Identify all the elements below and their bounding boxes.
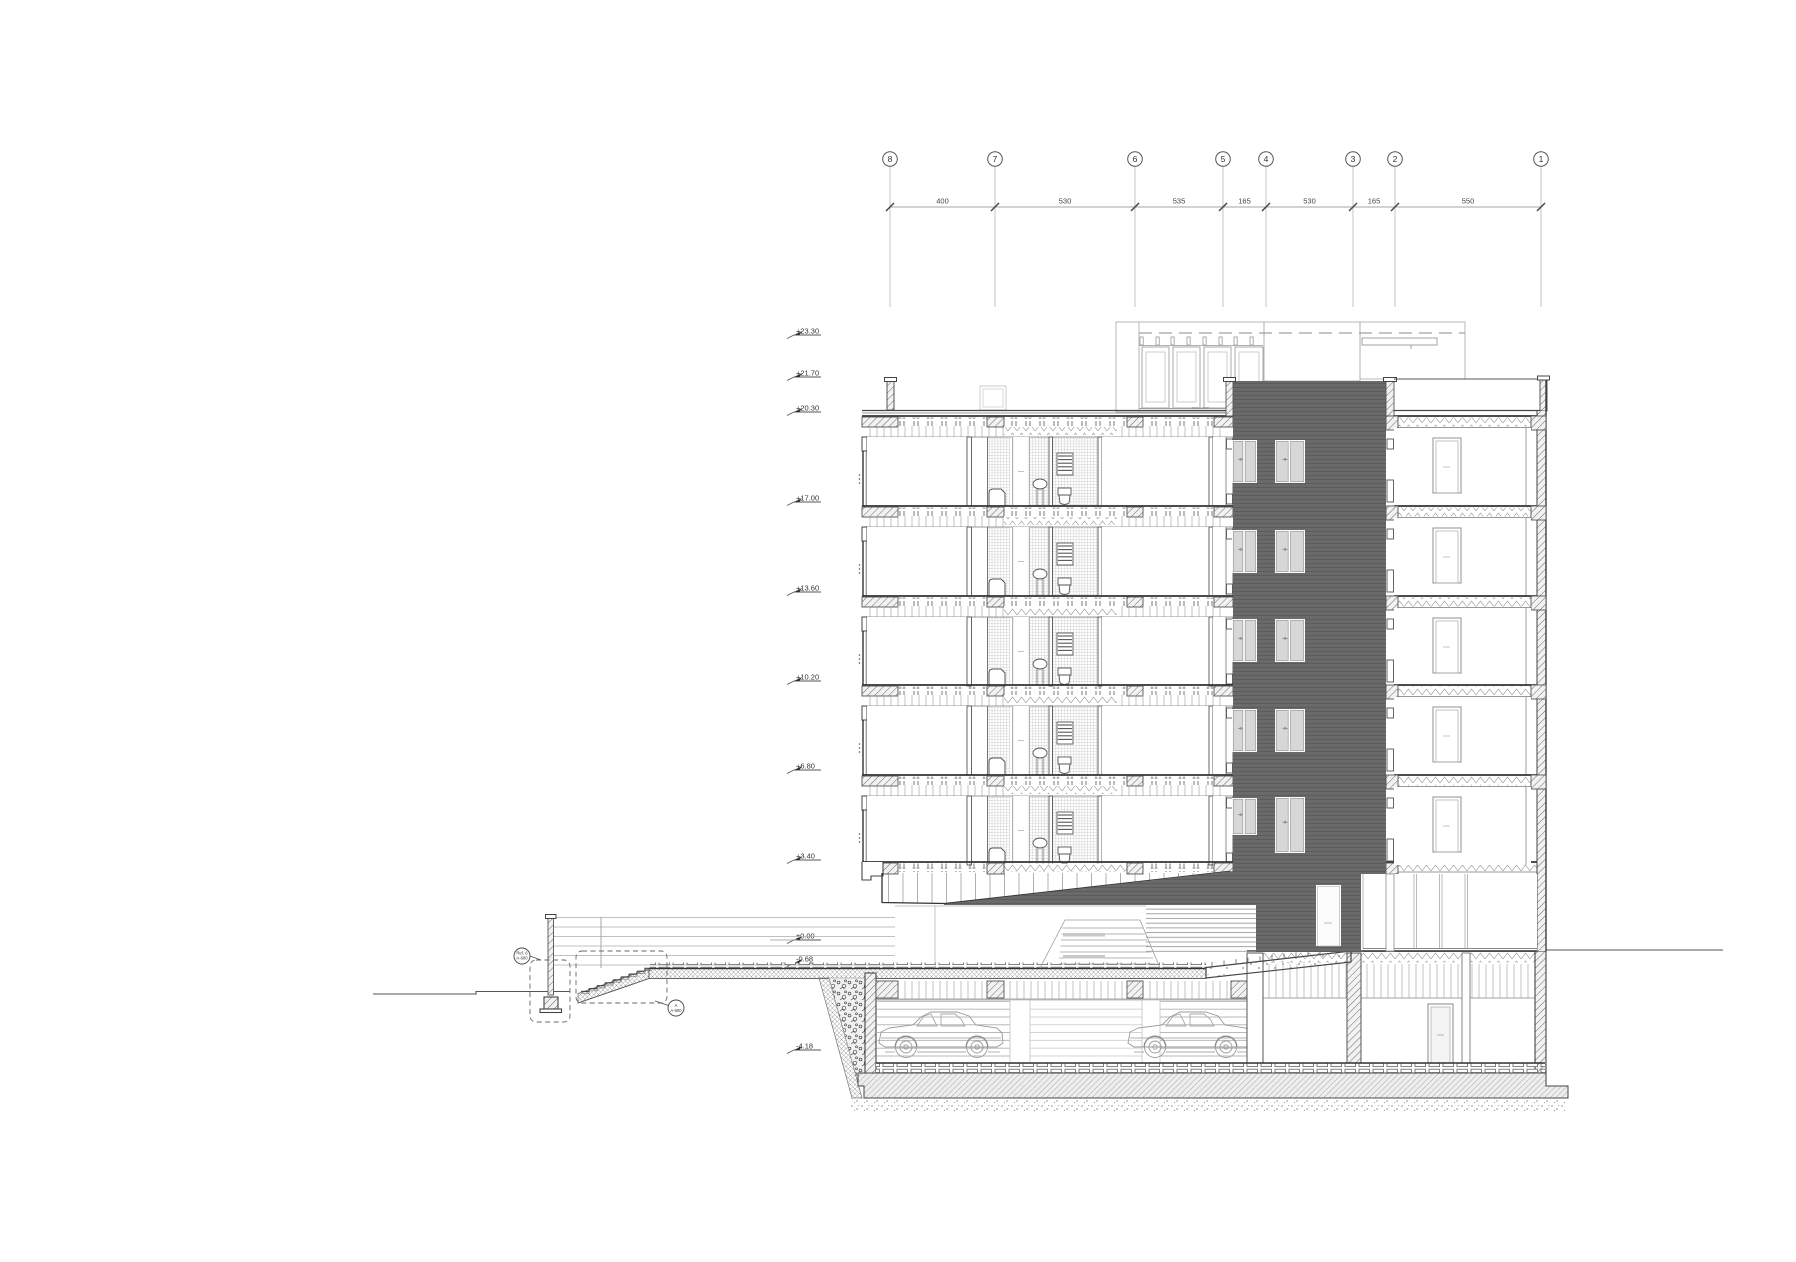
svg-text:2: 2 xyxy=(1393,154,1398,164)
svg-text:5: 5 xyxy=(1221,154,1226,164)
svg-text:A-600: A-600 xyxy=(670,1008,682,1013)
svg-text:165: 165 xyxy=(1368,197,1381,206)
svg-text:7: 7 xyxy=(993,154,998,164)
svg-text:4: 4 xyxy=(1264,154,1269,164)
svg-text:530: 530 xyxy=(1303,197,1316,206)
svg-text:530: 530 xyxy=(1059,197,1072,206)
svg-text:550: 550 xyxy=(1462,197,1475,206)
svg-text:1: 1 xyxy=(1539,154,1544,164)
svg-text:165: 165 xyxy=(1238,197,1251,206)
svg-text:6: 6 xyxy=(1133,154,1138,164)
svg-text:8: 8 xyxy=(888,154,893,164)
svg-text:535: 535 xyxy=(1173,197,1186,206)
svg-text:3: 3 xyxy=(1351,154,1356,164)
svg-text:sun panel: sun panel xyxy=(1192,405,1209,410)
svg-text:A-600: A-600 xyxy=(516,956,528,961)
svg-text:400: 400 xyxy=(936,197,949,206)
